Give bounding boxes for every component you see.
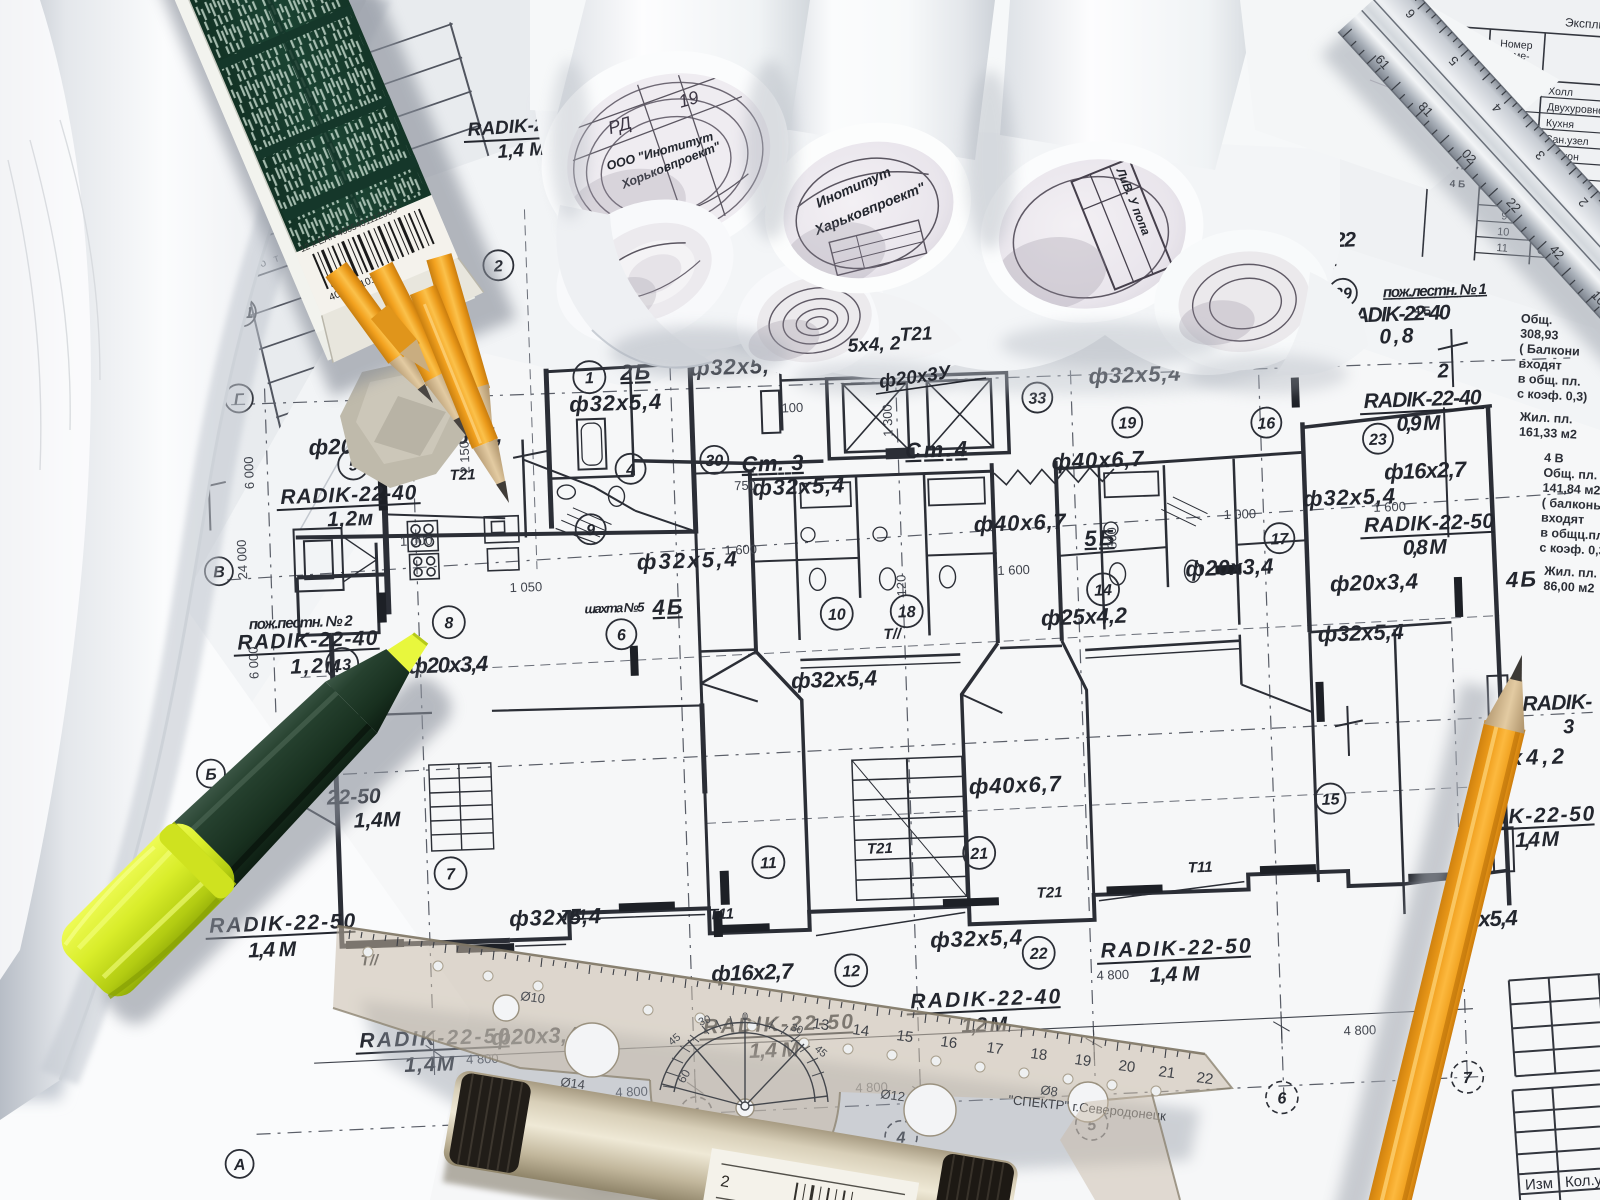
svg-text:Б: Б [205, 766, 217, 783]
svg-text:ф40x6,7: ф40x6,7 [968, 771, 1063, 799]
svg-text:ф32x5,4: ф32x5,4 [509, 903, 602, 931]
svg-text:9: 9 [586, 522, 596, 539]
svg-text:1,4М: 1,4М [353, 808, 401, 833]
svg-text:Холл: Холл [1548, 85, 1574, 99]
svg-text:1 000: 1 000 [1223, 506, 1256, 522]
svg-text:300: 300 [1104, 527, 1120, 549]
svg-text:11: 11 [760, 855, 777, 873]
svg-text:ф32x5,4: ф32x5,4 [791, 665, 878, 693]
svg-text:6: 6 [617, 627, 627, 644]
svg-text:23: 23 [1368, 431, 1387, 449]
svg-text:2 150: 2 150 [457, 441, 473, 474]
svg-text:Т11: Т11 [709, 905, 734, 923]
svg-text:22: 22 [1195, 1069, 1214, 1088]
svg-text:1 300: 1 300 [879, 404, 895, 437]
svg-text:1,2м: 1,2м [327, 507, 374, 532]
svg-text:8: 8 [444, 615, 454, 632]
svg-text:14: 14 [851, 1021, 870, 1040]
svg-text:Общ.: Общ. [1521, 312, 1553, 328]
svg-text:30: 30 [705, 453, 723, 471]
svg-text:ф40x6,7: ф40x6,7 [973, 509, 1068, 537]
svg-text:ф16x2,7: ф16x2,7 [1384, 457, 1469, 485]
svg-text:1 600: 1 600 [724, 541, 757, 557]
svg-text:4 Б: 4 Б [1414, 305, 1431, 317]
svg-text:12: 12 [842, 963, 860, 981]
svg-text:120: 120 [893, 574, 909, 596]
svg-text:1,4 М: 1,4 М [1515, 828, 1560, 853]
svg-text:4 800: 4 800 [1343, 1022, 1376, 1038]
svg-text:308,93: 308,93 [1520, 327, 1559, 343]
svg-text:Изм: Изм [1525, 1175, 1554, 1194]
svg-text:1 600: 1 600 [997, 562, 1030, 578]
svg-text:16: 16 [939, 1033, 958, 1052]
svg-text:4: 4 [625, 462, 636, 479]
svg-text:86,00 м2: 86,00 м2 [1543, 579, 1595, 596]
svg-text:21: 21 [1157, 1063, 1176, 1082]
svg-text:1,4 М: 1,4 М [248, 938, 297, 963]
svg-text:А: А [233, 1157, 246, 1174]
svg-text:22: 22 [1029, 946, 1048, 964]
svg-text:750: 750 [734, 477, 756, 493]
svg-text:6 000: 6 000 [246, 646, 262, 679]
svg-text:1 600: 1 600 [1373, 499, 1406, 515]
svg-text:0,8: 0,8 [1379, 324, 1414, 348]
svg-text:0,9 М: 0,9 М [1396, 411, 1441, 436]
svg-text:4Б: 4Б [651, 594, 683, 620]
svg-text:Эксплц: Эксплц [1565, 15, 1600, 32]
svg-text:2: 2 [1436, 360, 1449, 382]
svg-text:24 000: 24 000 [234, 539, 250, 579]
svg-text:14: 14 [1094, 582, 1112, 600]
svg-text:ф20x3,4: ф20x3,4 [1330, 568, 1419, 596]
svg-text:пож.лестн. № 1: пож.лестн. № 1 [1383, 281, 1488, 302]
svg-text:4 800: 4 800 [1096, 967, 1129, 983]
svg-text:20: 20 [1117, 1057, 1136, 1076]
svg-text:16: 16 [1257, 415, 1275, 433]
svg-text:4Б: 4Б [1505, 566, 1537, 592]
svg-text:Ст. 3: Ст. 3 [741, 450, 804, 477]
svg-text:17: 17 [1270, 531, 1289, 549]
svg-text:1 050: 1 050 [509, 579, 542, 595]
svg-text:100: 100 [781, 400, 803, 416]
svg-text:1,4 М: 1,4 М [497, 139, 547, 163]
svg-text:6 000: 6 000 [241, 456, 257, 489]
svg-text:Ст.4: Ст.4 [905, 436, 968, 463]
svg-text:15: 15 [1321, 791, 1340, 809]
svg-text:13: 13 [811, 1015, 830, 1034]
svg-text:10: 10 [828, 606, 846, 624]
svg-text:5x4, 2: 5x4, 2 [847, 333, 901, 357]
svg-text:ф20x3,4: ф20x3,4 [1185, 553, 1274, 581]
svg-text:Т21: Т21 [899, 323, 933, 346]
svg-text:Общ. пл.: Общ. пл. [1543, 466, 1598, 483]
svg-text:ф40x6,7: ф40x6,7 [1051, 446, 1146, 474]
svg-text:1,4 М: 1,4 М [1149, 962, 1200, 987]
svg-text:19: 19 [1073, 1051, 1092, 1070]
svg-text:21: 21 [969, 846, 988, 864]
svg-text:шахта №5: шахта №5 [584, 599, 645, 616]
svg-text:RADIK-: RADIK- [1522, 690, 1593, 715]
svg-text:Т21: Т21 [561, 907, 587, 925]
svg-text:ф32x5,4: ф32x5,4 [930, 924, 1023, 952]
svg-text:ф25x4,2: ф25x4,2 [1041, 603, 1129, 631]
svg-text:Т//: Т// [883, 625, 903, 643]
svg-text:Кухня: Кухня [1546, 117, 1575, 131]
svg-text:0,8 М: 0,8 М [1402, 535, 1447, 560]
svg-text:Т21: Т21 [1036, 884, 1062, 902]
svg-text:ф32x5,4: ф32x5,4 [1317, 619, 1404, 647]
svg-text:17: 17 [985, 1039, 1004, 1058]
svg-text:15: 15 [895, 1027, 914, 1046]
svg-text:ф32x5,4: ф32x5,4 [752, 472, 845, 500]
svg-text:Жил. пл.: Жил. пл. [1543, 564, 1598, 581]
svg-text:Кол.у: Кол.у [1564, 1171, 1600, 1191]
svg-text:входят: входят [1541, 511, 1585, 527]
svg-text:Т11: Т11 [1188, 859, 1213, 877]
svg-text:1 000: 1 000 [400, 533, 433, 549]
svg-text:ф32x5,4: ф32x5,4 [569, 389, 662, 417]
svg-text:19: 19 [1118, 415, 1136, 433]
svg-text:4 В: 4 В [1544, 451, 1564, 466]
svg-text:18: 18 [898, 604, 916, 622]
svg-text:0: 0 [742, 1011, 748, 1023]
svg-text:Жил. пл.: Жил. пл. [1518, 410, 1573, 427]
svg-text:18: 18 [1029, 1045, 1048, 1064]
svg-text:3: 3 [1563, 716, 1575, 738]
svg-text:1: 1 [585, 370, 595, 387]
svg-text:6: 6 [1277, 1090, 1287, 1107]
svg-text:Т21: Т21 [867, 840, 893, 858]
svg-text:входят: входят [1518, 357, 1562, 373]
